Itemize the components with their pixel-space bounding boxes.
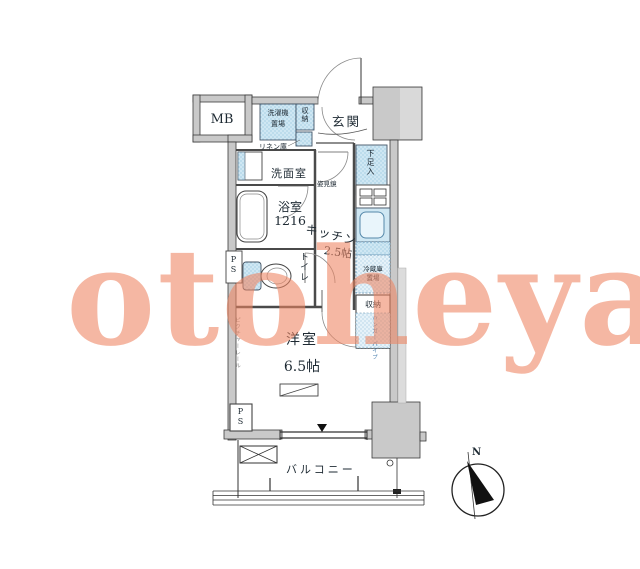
toilet-tank [243,262,261,290]
label-room-name: 洋室 [278,329,326,349]
label-toilet: トイレ [297,252,310,282]
pillar-tab [420,432,426,441]
wall-left-top [228,135,252,142]
label-room-size: 6.5帖 [278,356,326,376]
wall-right-outer-band [398,268,406,403]
floor-plan: MB 玄関 洗濯機 置場 収納 リネン庫 洗面室 姿見鏡 下足入 浴室 1216… [0,0,640,569]
counter-extension [356,242,390,255]
balcony-railing [213,476,424,505]
label-ps-top: PS [229,255,238,275]
label-bath-size: 1216 [270,213,310,228]
room-door-arc [322,312,357,347]
floor-plan-drawing [0,0,640,569]
label-ps-bottom: PS [236,407,245,427]
vanity-sink-strip [238,152,245,180]
label-hanger-pipe: ハンガーパイプ [370,315,378,361]
label-picture-rail: ピクチャーレール [233,317,241,369]
window-marker-triangle [317,424,327,432]
label-linen: リネン庫 [259,142,287,152]
entrance-door-arc [318,58,361,104]
wall-left [228,142,236,440]
label-washroom: 洗面室 [271,165,307,181]
label-mirror: 姿見鏡 [317,178,337,188]
label-fridge-line2: 置場 [360,272,386,282]
label-hall-storage: 収納 [300,107,310,123]
pillar-bottom-right [372,402,420,458]
label-kitchen-storage: 収納 [356,299,390,310]
stove-box [356,185,390,208]
bathtub [237,191,267,242]
label-entrance: 玄関 [332,111,361,130]
label-laundry-line2: 置場 [261,119,295,129]
toilet-bowl [261,264,291,288]
label-north: N [472,447,481,458]
label-balcony: バルコニー [286,461,356,477]
wall-right [390,140,398,403]
pillar-light-part [400,88,421,139]
label-shoe-cabinet: 下足入 [365,149,376,176]
wall-mb-top [193,95,252,102]
sink-basin [360,212,384,238]
linen-box [296,132,312,146]
label-mb: MB [202,112,242,127]
drain-box [393,489,401,494]
drain-circle [387,460,393,466]
compass [452,452,504,519]
label-laundry-line1: 洗濯機 [261,109,295,118]
wall-top [252,97,318,104]
